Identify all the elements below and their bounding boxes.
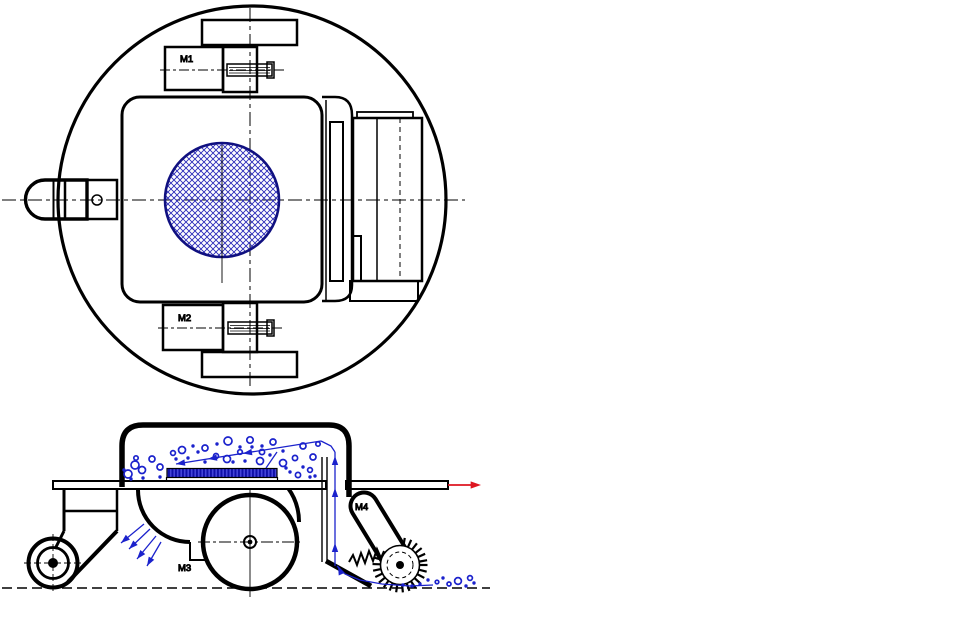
debris-dot (288, 470, 291, 473)
debris-ring (316, 442, 320, 446)
motor-m1-body (165, 47, 223, 90)
debris-ring (171, 451, 176, 456)
debris-ring (131, 461, 139, 469)
debris-dot (410, 584, 413, 587)
debris-dot (464, 584, 467, 587)
debris-ring (435, 580, 439, 584)
debris-ring (157, 464, 163, 470)
debris-dot (129, 477, 132, 480)
debris-dot (215, 442, 218, 445)
debris-tray-strip (167, 469, 277, 478)
debris-ring (139, 467, 146, 474)
debris-dot (426, 578, 429, 581)
wheel-housing-front-arc (138, 490, 190, 542)
debris-dot (301, 465, 304, 468)
debris-dot (186, 456, 189, 459)
brush-tooth (419, 560, 427, 561)
debris-ring (259, 449, 264, 454)
debris-ring (447, 582, 451, 586)
front-caster-side-view (24, 489, 117, 593)
debris-ring (280, 460, 287, 467)
debris-dot (231, 460, 234, 463)
debris-dot (250, 445, 253, 448)
debris-dot (158, 475, 161, 478)
duct-ramp-blade (326, 561, 371, 586)
bracket-inner-panel (330, 122, 343, 281)
debris-dot (196, 450, 199, 453)
motor-m4-label: M4 (355, 502, 368, 513)
debris-dot (122, 468, 125, 471)
red-arrow-head (471, 481, 481, 488)
debris-dot (174, 457, 177, 460)
debris-dot (238, 445, 241, 448)
motor-m1-label: M1 (180, 54, 193, 65)
drive-unit-m2: M2 (158, 303, 297, 377)
battery-bottom-lid (350, 281, 418, 301)
debris-dot (441, 576, 444, 579)
chassis-deck-right (346, 481, 448, 489)
debris-ring (455, 578, 462, 585)
duct-top-bend (321, 441, 335, 452)
brush-tooth (415, 548, 421, 553)
brush-tooth (373, 569, 381, 571)
debris-dot (284, 466, 287, 469)
debris-dot (418, 582, 421, 585)
main-drive-wheel (198, 489, 302, 597)
debris-dot (313, 474, 316, 477)
top-view-drawing: M1 M2 (2, 6, 465, 394)
debris-ring (310, 454, 316, 460)
debris-dot (203, 460, 206, 463)
brush-tooth (375, 574, 382, 578)
direction-of-travel-arrow (448, 481, 481, 488)
debris-dot (268, 453, 271, 456)
debris-ring (247, 437, 253, 443)
debris-dot (191, 444, 194, 447)
debris-ring (468, 576, 473, 581)
debris-dot (308, 475, 311, 478)
debris-ring (202, 445, 208, 451)
debris-dot (401, 583, 404, 586)
debris-dot (472, 581, 475, 584)
motor-m2-label: M2 (178, 313, 191, 324)
brush-tooth (412, 543, 417, 549)
debris-dot (243, 459, 246, 462)
brush-tooth (419, 570, 427, 572)
brush-tooth (418, 554, 425, 557)
debris-ring (224, 437, 232, 445)
debris-dot (260, 444, 263, 447)
brush-tooth (407, 583, 410, 591)
debris-ring (238, 450, 243, 455)
debris-dot (141, 476, 144, 479)
debris-ring (257, 458, 264, 465)
brush-tooth (379, 578, 385, 583)
brush-axle (396, 561, 404, 569)
debris-tray (167, 469, 278, 482)
drive-unit-m1: M1 (160, 20, 297, 92)
debris-ring (134, 456, 138, 460)
robot-drawing-canvas: M1 M2 (0, 0, 961, 630)
debris-dot (281, 449, 284, 452)
brush-tooth (417, 574, 424, 578)
side-view-drawing: M4 M3 (2, 425, 490, 597)
brush-tooth (408, 540, 411, 547)
motor-m3-label: M3 (178, 563, 191, 574)
debris-ring (295, 472, 300, 477)
brush-tooth (403, 538, 404, 546)
chassis-deck-left (53, 481, 326, 489)
debris-ring (270, 439, 276, 445)
technical-drawing-page: M1 M2 (0, 0, 961, 630)
debris-ring (308, 468, 313, 473)
debris-ring (149, 456, 155, 462)
debris-ring (179, 447, 186, 454)
debris-ring (292, 455, 297, 460)
